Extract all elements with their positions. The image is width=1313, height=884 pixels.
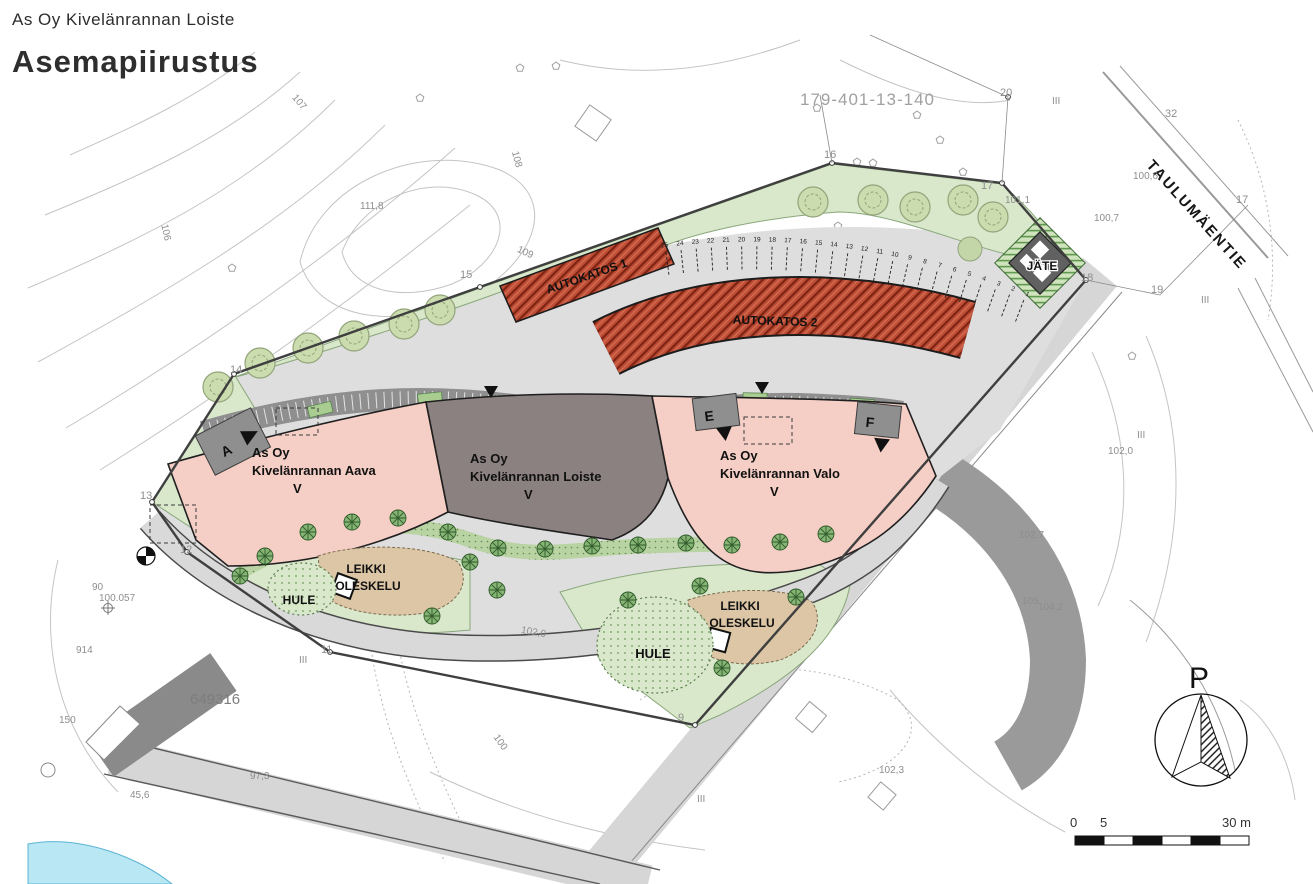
north-arrow: P (1155, 662, 1247, 786)
parcel-id-label: 179-401-13-140 (800, 90, 935, 109)
svg-text:97,3: 97,3 (250, 771, 270, 782)
svg-text:100,7: 100,7 (1094, 213, 1119, 224)
parking-stall-number: 14 (830, 241, 838, 249)
svg-text:III: III (697, 794, 705, 805)
parking-stall-number: 15 (815, 239, 823, 247)
svg-text:12: 12 (180, 544, 192, 556)
parking-stall-number: 25 (661, 242, 669, 250)
parking-stall-number: 22 (707, 237, 715, 244)
parking-stall-number: 24 (676, 240, 684, 248)
svg-text:45,6: 45,6 (130, 790, 150, 801)
survey-marker (137, 547, 155, 565)
svg-text:100,6: 100,6 (1133, 171, 1158, 182)
svg-text:17: 17 (981, 180, 993, 192)
survey-circle (41, 763, 55, 777)
scale-bar: 0 5 30 m (1070, 815, 1251, 845)
svg-text:150: 150 (59, 715, 76, 726)
svg-text:90: 90 (92, 582, 104, 593)
parking-stall-number: 13 (845, 243, 854, 251)
stormwater-area-right (597, 597, 713, 693)
scale-zero: 0 (1070, 815, 1077, 830)
svg-text:109: 109 (515, 244, 535, 261)
svg-text:108: 108 (509, 150, 524, 169)
map-diamond (868, 782, 896, 810)
lake (28, 842, 172, 884)
svg-text:III: III (1201, 295, 1209, 306)
svg-text:18: 18 (1081, 272, 1093, 284)
svg-text:101,1: 101,1 (1005, 195, 1030, 206)
svg-text:20: 20 (1000, 87, 1012, 99)
svg-text:III: III (1052, 96, 1060, 107)
svg-text:OLESKELU: OLESKELU (335, 579, 400, 593)
svg-text:III: III (299, 655, 307, 666)
parking-stall-number: 17 (784, 237, 792, 244)
parking-stall-number: 21 (722, 237, 730, 244)
scale-thirty: 30 m (1222, 815, 1251, 830)
curved-neighbour-building (940, 478, 1058, 766)
svg-text:102,3: 102,3 (879, 765, 904, 776)
svg-text:As Oy: As Oy (720, 448, 758, 463)
svg-text:107: 107 (289, 92, 308, 112)
svg-text:111,8: 111,8 (360, 201, 384, 212)
svg-text:13: 13 (140, 490, 152, 502)
project-name: As Oy Kivelänrannan Loiste (12, 10, 259, 30)
svg-text:Kivelänrannan Valo: Kivelänrannan Valo (720, 466, 840, 481)
svg-text:102,0: 102,0 (1108, 446, 1133, 457)
svg-text:V: V (770, 484, 779, 499)
svg-text:III: III (1137, 430, 1145, 441)
title-block: As Oy Kivelänrannan Loiste Asemapiirustu… (12, 10, 259, 80)
svg-text:105: 105 (1022, 596, 1039, 607)
svg-text:914: 914 (76, 645, 93, 656)
svg-text:106: 106 (158, 223, 172, 242)
svg-text:As Oy: As Oy (470, 451, 508, 466)
street-name-label: TAULUMÄENTIE (1143, 157, 1250, 273)
parking-stall-number: 20 (738, 236, 746, 243)
svg-text:OLESKELU: OLESKELU (709, 616, 774, 630)
svg-text:16: 16 (824, 149, 836, 161)
stormwater-area-left (268, 563, 336, 615)
svg-text:100: 100 (491, 733, 510, 753)
drawing-title: Asemapiirustus (12, 44, 259, 80)
svg-text:15: 15 (460, 269, 472, 281)
svg-text:V: V (293, 481, 302, 496)
svg-text:V: V (524, 487, 533, 502)
svg-text:19: 19 (1151, 284, 1163, 296)
parking-stall-number: 16 (799, 238, 807, 246)
site-plan-drawing: A E F 2524232221201918171615141312111098… (0, 0, 1313, 884)
svg-text:100.057: 100.057 (99, 593, 136, 604)
svg-text:As Oy: As Oy (252, 445, 290, 460)
map-diamond (575, 105, 611, 141)
svg-text:Kivelänrannan Loiste: Kivelänrannan Loiste (470, 469, 601, 484)
svg-text:14: 14 (230, 364, 242, 376)
parking-stall-number: 18 (769, 237, 777, 244)
carport2-label: AUTOKATOS 2 (733, 313, 818, 330)
waste-shed-label: JÄTE (1027, 258, 1058, 273)
hule-right-label: HULE (635, 646, 671, 661)
svg-text:102,7: 102,7 (1019, 530, 1044, 541)
north-label: P (1189, 662, 1209, 695)
road-bottom-left (104, 738, 660, 884)
parking-stall-number: 19 (753, 236, 761, 243)
entrance-letter-e: E (703, 407, 714, 424)
svg-text:649316: 649316 (190, 691, 240, 708)
svg-text:9: 9 (678, 712, 684, 724)
parking-stall-number: 23 (691, 238, 699, 246)
hule-left-label: HULE (283, 593, 316, 607)
map-diamond (796, 702, 827, 733)
svg-text:104,2: 104,2 (1038, 602, 1063, 613)
svg-text:32: 32 (1165, 108, 1177, 120)
svg-text:11: 11 (321, 644, 332, 656)
scale-five: 5 (1100, 815, 1107, 830)
svg-text:LEIKKI: LEIKKI (720, 599, 759, 613)
svg-text:LEIKKI: LEIKKI (346, 562, 385, 576)
svg-text:17: 17 (1236, 194, 1248, 206)
svg-text:Kivelänrannan Aava: Kivelänrannan Aava (252, 463, 377, 478)
